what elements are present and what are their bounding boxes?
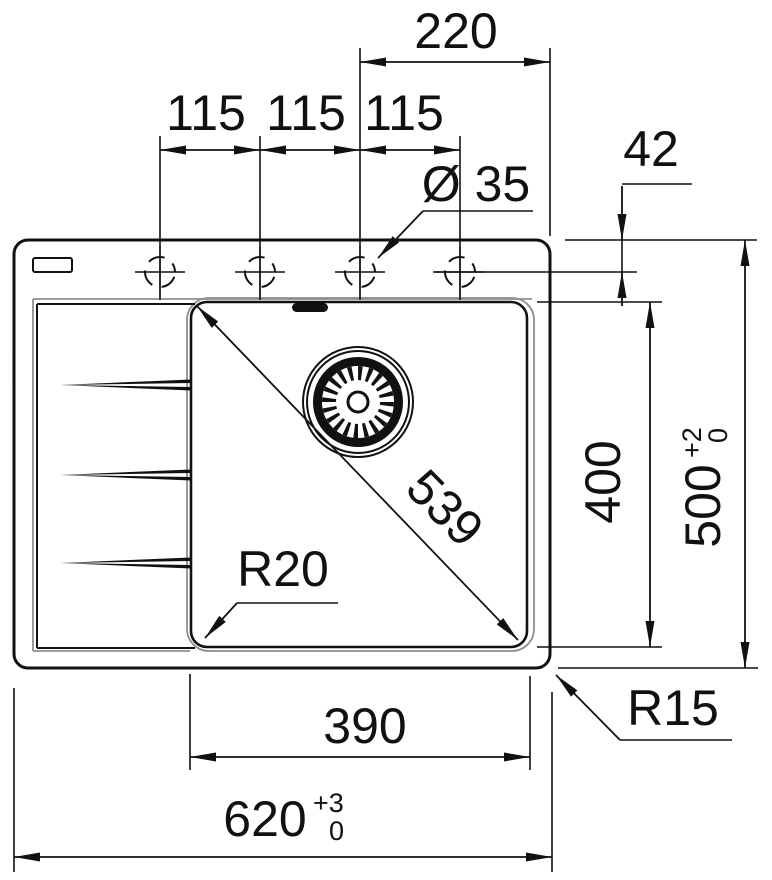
leader-r15: [556, 675, 620, 740]
dim-label-390: 390: [323, 698, 406, 754]
dim-label-400-group: 400: [575, 440, 631, 523]
dim-label-500: 500: [675, 464, 731, 547]
overflow-slot: [292, 303, 328, 312]
dim-label-115-3: 115: [364, 85, 444, 141]
drawing-canvas: 220 115 115 115 Ø 35 42 400 500 +2 0 539…: [0, 0, 772, 880]
dim-label-115-2: 115: [266, 85, 346, 141]
sink-technical-drawing: 220 115 115 115 Ø 35 42 400 500 +2 0 539…: [0, 0, 772, 880]
dim-label-500-group: 500 +2 0: [675, 427, 733, 548]
dim-label-r15: R15: [627, 680, 719, 736]
dim-label-115-1: 115: [166, 85, 246, 141]
dim-label-r20: R20: [237, 541, 329, 597]
dim-label-620-tol-minus: 0: [329, 816, 344, 846]
dim-label-620-tol-plus: +3: [313, 788, 344, 818]
dim-label-hole-diameter: Ø 35: [422, 156, 530, 212]
dim-label-620: 620: [223, 791, 306, 847]
dim-label-400: 400: [575, 440, 631, 523]
dim-label-220: 220: [414, 3, 497, 59]
dim-label-42: 42: [623, 121, 679, 177]
dim-label-500-tol-minus: 0: [703, 428, 733, 443]
